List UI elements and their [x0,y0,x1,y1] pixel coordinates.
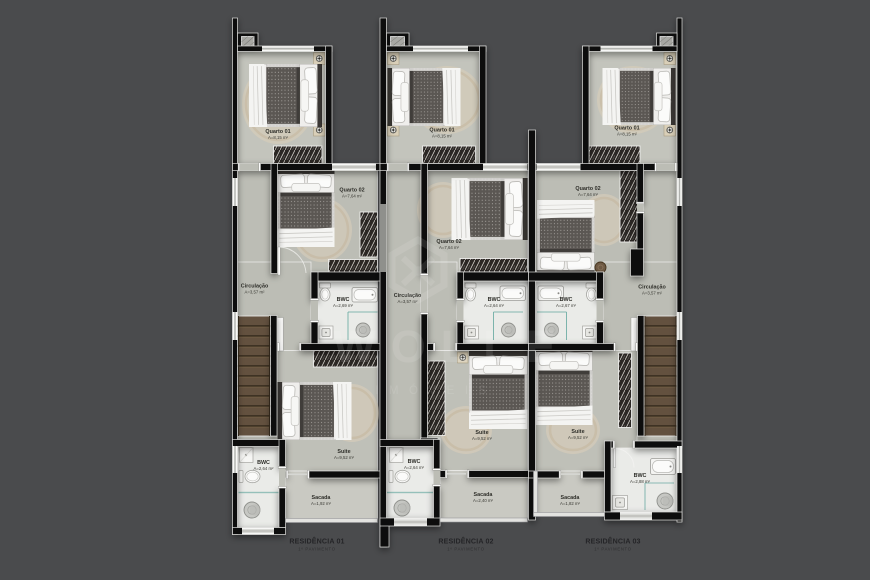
svg-text:A=2,64 m²: A=2,64 m² [484,303,505,308]
svg-text:A=2,88 m²: A=2,88 m² [630,479,651,484]
svg-text:Quarto 02: Quarto 02 [575,186,600,192]
svg-text:IMÓVEIS: IMÓVEIS [375,384,496,397]
svg-text:A=9,52 m²: A=9,52 m² [334,455,355,460]
svg-text:BWC: BWC [408,459,421,465]
svg-text:RESIDÊNCIA 01: RESIDÊNCIA 01 [289,537,344,546]
svg-text:BWC: BWC [257,460,270,466]
svg-text:Sacada: Sacada [312,495,332,501]
svg-text:A=9,52 m²: A=9,52 m² [472,436,493,441]
svg-text:A=3,57 m²: A=3,57 m² [642,291,663,296]
svg-text:A=2,40 m²: A=2,40 m² [473,498,494,503]
svg-text:Quarto 01: Quarto 01 [265,129,290,135]
svg-text:Quarto 02: Quarto 02 [436,239,461,245]
svg-text:A=8,15 m²: A=8,15 m² [617,132,638,137]
svg-text:WOLLE: WOLLE [333,321,570,372]
svg-text:1º PAVIMENTO: 1º PAVIMENTO [298,547,335,552]
svg-text:A=2,67 m²: A=2,67 m² [556,303,577,308]
svg-text:BWC: BWC [337,297,350,303]
svg-text:A=1,82 m²: A=1,82 m² [560,501,581,506]
svg-text:A=9,52 m²: A=9,52 m² [568,435,589,440]
svg-text:A=8,15 m²: A=8,15 m² [268,135,289,140]
svg-text:RESIDÊNCIA 03: RESIDÊNCIA 03 [585,537,640,546]
svg-text:BWC: BWC [560,297,573,303]
svg-text:A=7,64 m²: A=7,64 m² [439,245,460,250]
svg-text:Suite: Suite [337,449,350,455]
svg-text:1º PAVIMENTO: 1º PAVIMENTO [594,547,631,552]
svg-text:1º PAVIMENTO: 1º PAVIMENTO [447,547,484,552]
svg-text:A=8,15 m²: A=8,15 m² [432,134,453,139]
svg-text:Sacada: Sacada [474,492,494,498]
svg-text:A=7,64 m²: A=7,64 m² [342,194,363,199]
svg-text:Circulação: Circulação [638,285,666,291]
svg-text:BWC: BWC [634,473,647,479]
svg-text:A=3,57 m²: A=3,57 m² [245,290,266,295]
svg-text:Suite: Suite [475,430,488,436]
svg-text:Quarto 01: Quarto 01 [614,126,639,132]
svg-text:RESIDÊNCIA 02: RESIDÊNCIA 02 [438,537,493,546]
svg-text:Quarto 01: Quarto 01 [429,128,454,134]
svg-text:Circulação: Circulação [241,284,269,290]
svg-text:A=2,69 m²: A=2,69 m² [333,303,354,308]
svg-text:A=2,64 m²: A=2,64 m² [254,466,275,471]
svg-text:A=1,92 m²: A=1,92 m² [311,501,332,506]
svg-text:BWC: BWC [488,297,501,303]
svg-text:A=7,64 m²: A=7,64 m² [578,192,599,197]
svg-text:Quarto 02: Quarto 02 [339,188,364,194]
svg-text:Sacada: Sacada [561,495,581,501]
svg-text:A=2,64 m²: A=2,64 m² [404,465,425,470]
svg-text:Suite: Suite [571,429,584,435]
